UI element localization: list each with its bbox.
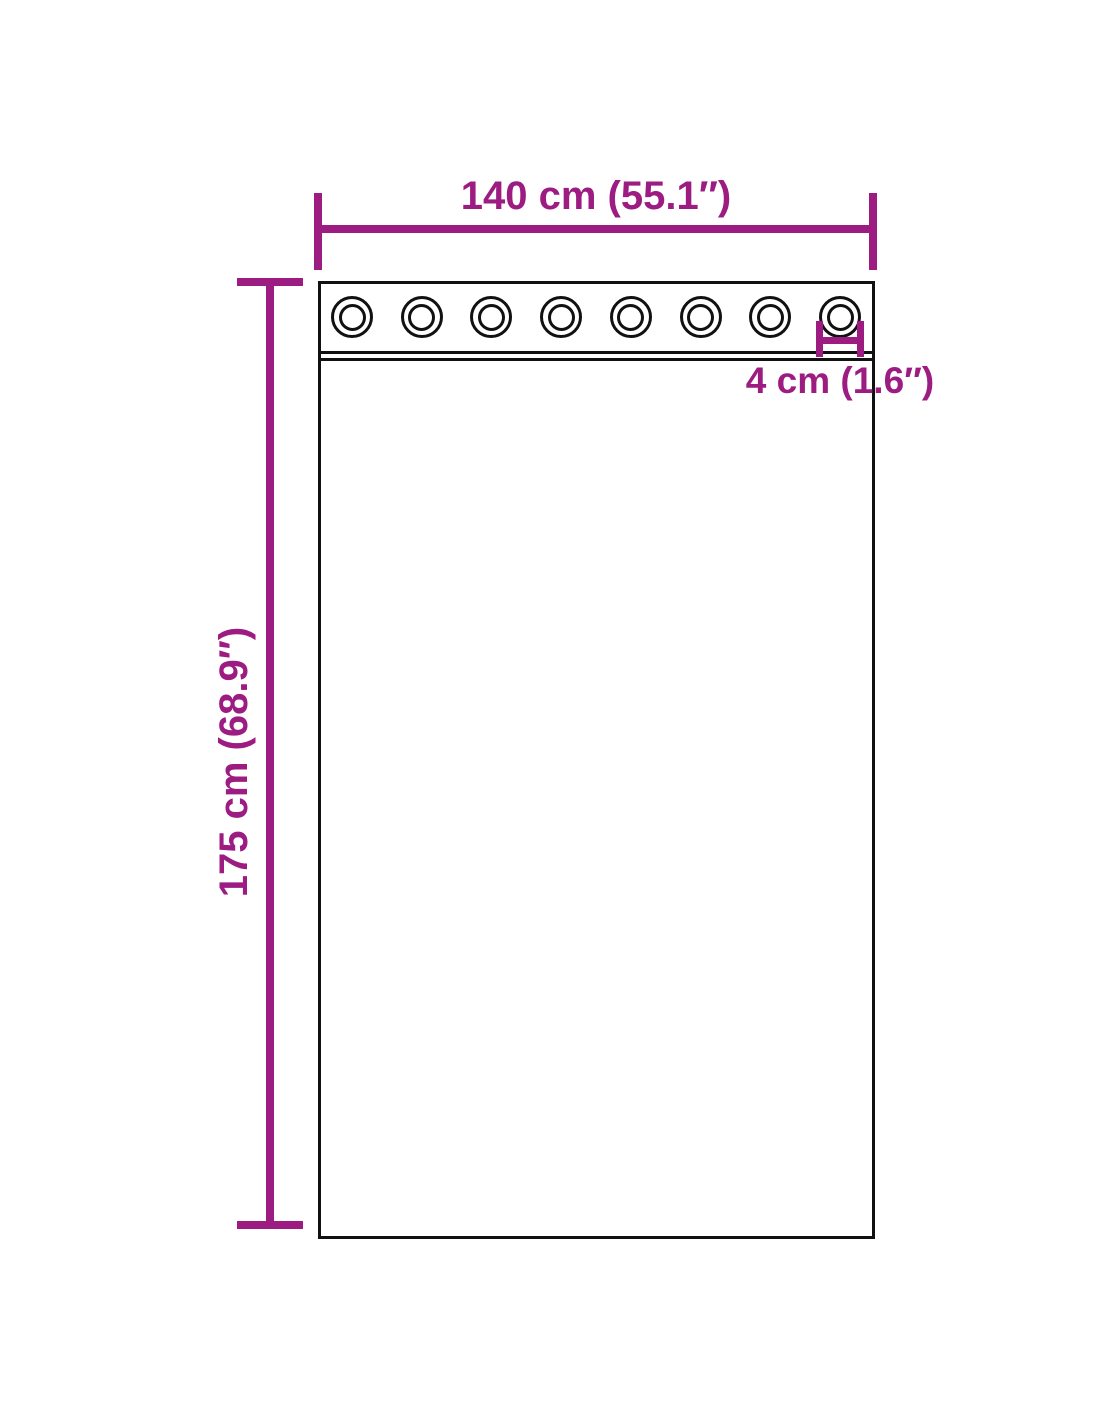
grommet-inner-ring (827, 304, 854, 331)
height-dimension-line (266, 282, 274, 1229)
width-dimension-line (318, 225, 874, 233)
grommet-dimension-label: 4 cm (1.6″) (746, 362, 934, 399)
grommet (819, 296, 861, 338)
grommet-inner-ring (548, 304, 575, 331)
height-dimension-label: 175 cm (68.9″) (214, 627, 254, 897)
grommet (749, 296, 791, 338)
grommet (680, 296, 722, 338)
grommet-inner-ring (408, 304, 435, 331)
width-dimension-label: 140 cm (55.1″) (318, 176, 874, 216)
grommet-bracket-crossbar (816, 337, 864, 344)
grommet (610, 296, 652, 338)
curtain-outline (318, 281, 875, 1239)
grommet (331, 296, 373, 338)
height-dimension-bottom-cap (237, 1221, 303, 1229)
height-dimension-top-cap (237, 278, 303, 286)
grommet-inner-ring (757, 304, 784, 331)
diagram-canvas: 140 cm (55.1″) 175 cm (68.9″) 4 cm (1.6″… (0, 0, 1100, 1422)
grommet-inner-ring (687, 304, 714, 331)
grommet-inner-ring (617, 304, 644, 331)
grommet-band-stitch-line-top (318, 351, 875, 354)
grommet (401, 296, 443, 338)
grommet-inner-ring (478, 304, 505, 331)
grommet-inner-ring (339, 304, 366, 331)
grommet (540, 296, 582, 338)
